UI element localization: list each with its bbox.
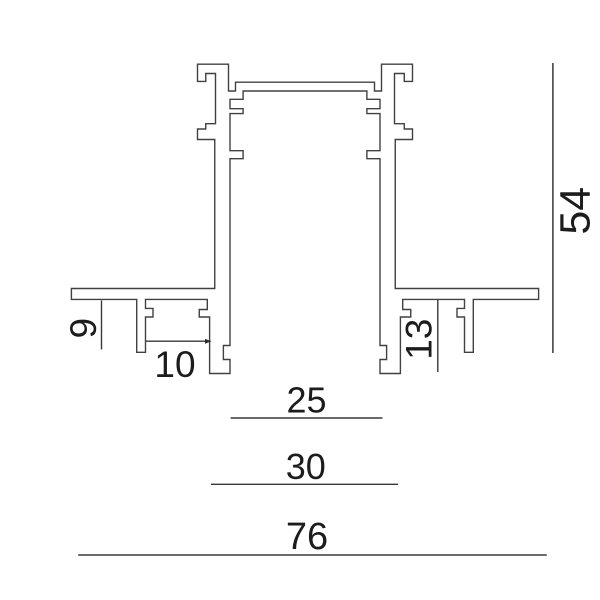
svg-text:54: 54 (552, 187, 600, 235)
svg-text:10: 10 (154, 344, 195, 385)
svg-text:25: 25 (286, 380, 326, 421)
svg-text:13: 13 (399, 319, 440, 360)
svg-text:30: 30 (286, 446, 326, 487)
svg-text:9: 9 (63, 318, 104, 339)
svg-text:76: 76 (286, 516, 328, 558)
